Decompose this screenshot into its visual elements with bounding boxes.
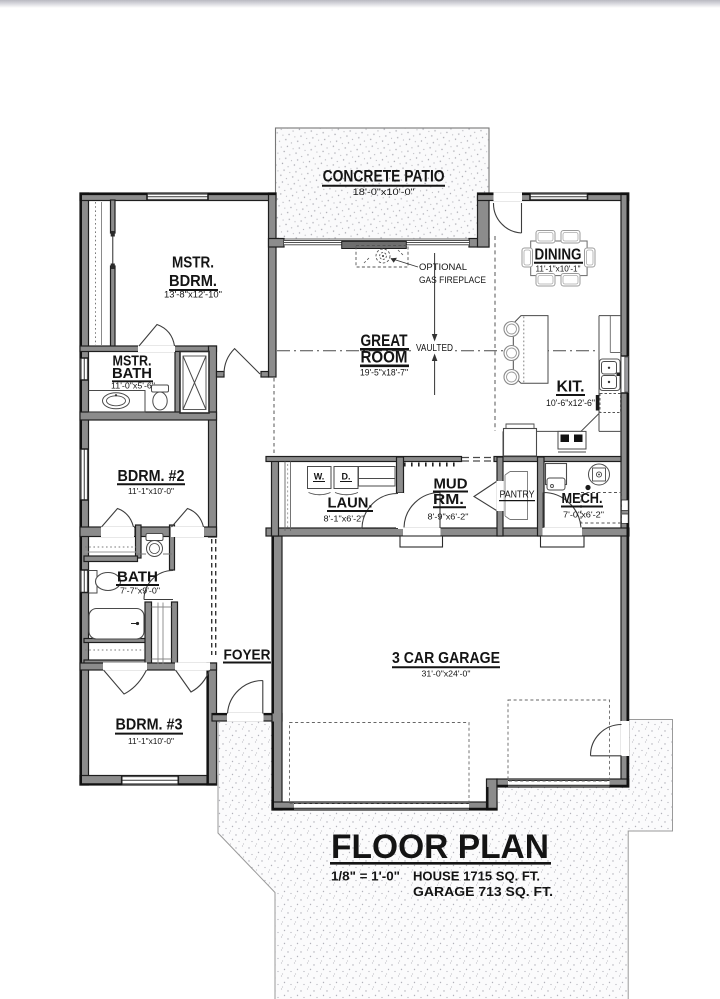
- svg-text:MUD: MUD: [434, 476, 468, 493]
- svg-text:OPTIONAL: OPTIONAL: [419, 262, 467, 273]
- svg-text:W.: W.: [314, 472, 325, 482]
- svg-text:11'-1"x10'-1": 11'-1"x10'-1": [536, 264, 581, 274]
- svg-text:8'-9"x6'-2": 8'-9"x6'-2": [428, 513, 469, 522]
- svg-text:GREAT: GREAT: [361, 332, 408, 350]
- svg-text:18'-0"x10'-0": 18'-0"x10'-0": [353, 187, 415, 198]
- svg-text:ROOM: ROOM: [361, 349, 408, 367]
- svg-text:3 CAR GARAGE: 3 CAR GARAGE: [392, 650, 500, 667]
- svg-text:8'-1"x6'-2": 8'-1"x6'-2": [324, 515, 365, 524]
- svg-text:1/8" = 1'-0": 1/8" = 1'-0": [331, 869, 400, 884]
- svg-text:11'-1"x10'-0": 11'-1"x10'-0": [128, 736, 174, 746]
- svg-text:13'-8"x12'-10": 13'-8"x12'-10": [164, 290, 222, 300]
- svg-text:KIT.: KIT.: [557, 379, 585, 396]
- svg-text:BATH: BATH: [117, 569, 158, 586]
- svg-text:MSTR.: MSTR.: [172, 255, 214, 272]
- svg-text:VAULTED: VAULTED: [416, 343, 453, 354]
- svg-text:RM.: RM.: [433, 491, 464, 508]
- svg-text:7'-0"x6'-2": 7'-0"x6'-2": [563, 511, 604, 520]
- svg-text:19'-5"x18'-7": 19'-5"x18'-7": [360, 368, 408, 378]
- svg-text:FOYER: FOYER: [224, 647, 271, 664]
- svg-text:BDRM. #3: BDRM. #3: [116, 717, 183, 734]
- svg-text:11'-0"x5'-6": 11'-0"x5'-6": [111, 382, 155, 391]
- svg-text:7'-7"x9'-0": 7'-7"x9'-0": [120, 587, 160, 596]
- svg-text:MECH.: MECH.: [562, 490, 603, 507]
- svg-text:11'-1"x10'-0": 11'-1"x10'-0": [128, 486, 174, 496]
- svg-text:GARAGE 713 SQ. FT.: GARAGE 713 SQ. FT.: [413, 884, 553, 899]
- svg-text:BDRM. #2: BDRM. #2: [118, 468, 185, 485]
- svg-text:DINING: DINING: [535, 247, 582, 264]
- svg-text:BDRM.: BDRM.: [169, 273, 217, 290]
- svg-text:10'-6"x12'-6": 10'-6"x12'-6": [546, 398, 595, 408]
- svg-text:FLOOR PLAN: FLOOR PLAN: [331, 828, 549, 866]
- svg-text:31'-0"x24'-0": 31'-0"x24'-0": [422, 669, 471, 679]
- svg-text:HOUSE 1715 SQ. FT.: HOUSE 1715 SQ. FT.: [413, 869, 540, 884]
- svg-text:BATH: BATH: [112, 366, 152, 382]
- svg-text:D.: D.: [342, 472, 351, 482]
- svg-text:GAS FIREPLACE: GAS FIREPLACE: [419, 275, 486, 286]
- svg-text:PANTRY: PANTRY: [500, 489, 535, 501]
- svg-text:CONCRETE PATIO: CONCRETE PATIO: [323, 167, 445, 186]
- svg-text:LAUN.: LAUN.: [328, 495, 373, 512]
